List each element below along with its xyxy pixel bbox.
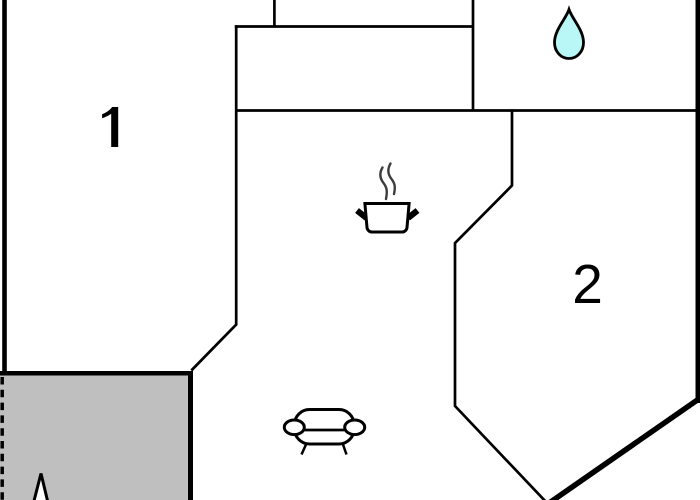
svg-text:2: 2 — [572, 253, 603, 315]
